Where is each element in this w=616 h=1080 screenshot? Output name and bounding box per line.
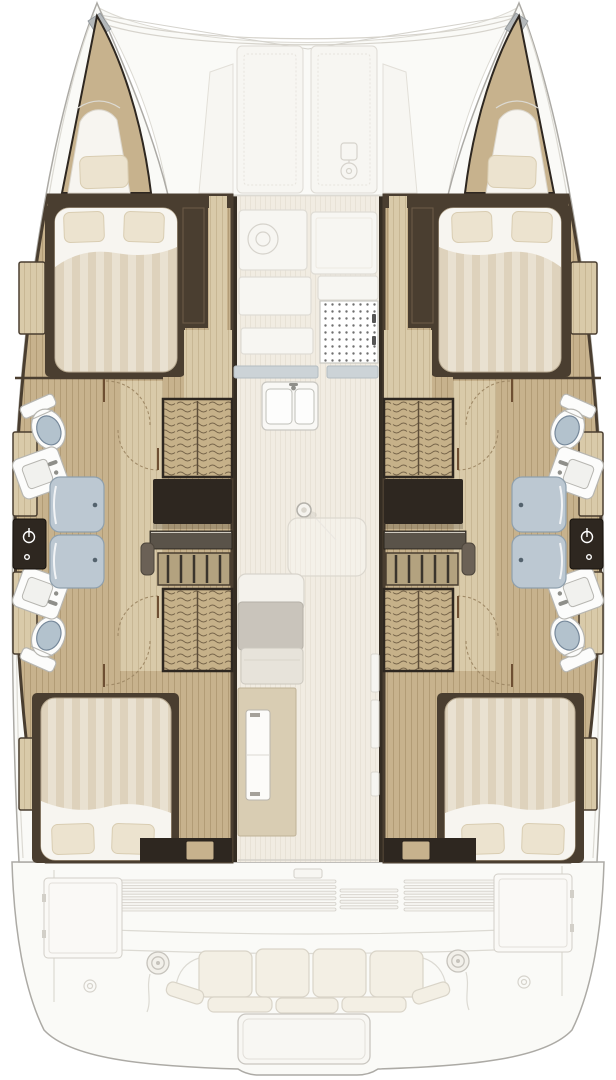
stbd-wall-locker (371, 700, 379, 748)
foredeck-panel-port (237, 46, 303, 193)
galley-sink-icon (262, 382, 318, 430)
salon-front-cabinet-stbd (311, 212, 377, 274)
stbd-stern-locker (494, 874, 574, 952)
bench-seat-cushion (276, 998, 338, 1013)
salon-table (288, 514, 366, 576)
bench-back-cushion (370, 951, 423, 997)
port-aft-cabin (32, 693, 179, 863)
bed-pillow (123, 211, 164, 242)
bed-pillow (63, 211, 104, 242)
shower-control-panel (13, 519, 46, 569)
stove-icon (320, 301, 378, 363)
stove-knob (372, 314, 376, 323)
forepeak-pillow (79, 155, 128, 189)
outboard-locker (19, 262, 45, 334)
hull-cockpit-door (186, 841, 214, 860)
hanging-locker-fore (163, 399, 232, 477)
stove-knob (372, 336, 376, 345)
bed-pillow (51, 823, 94, 854)
counter-edge-stbd (327, 366, 378, 378)
hanging-locker-aft (163, 589, 232, 671)
stbd-wall-locker (371, 772, 379, 796)
aft-double-bed (41, 698, 171, 860)
foredeck (99, 8, 517, 195)
galley-drawer (241, 328, 313, 354)
shower-door-handle (93, 503, 98, 508)
shower-door-handle (93, 558, 98, 563)
floor-plan-canvas (0, 0, 616, 1080)
galley-counter (239, 277, 311, 315)
cockpit-door-sill (294, 869, 322, 878)
port-stern-locker (42, 878, 122, 958)
stbd-wall-locker (371, 654, 379, 692)
floor-plan-page (0, 0, 616, 1080)
counter-edge-port (234, 366, 318, 378)
salon-aft-cabinet (238, 688, 296, 836)
bench-back-cushion (313, 949, 366, 997)
companionway-handrail (141, 543, 154, 575)
galley-drawer-stbd (318, 276, 378, 300)
fwd-cabin-walkway (184, 330, 232, 398)
salon-settee (238, 574, 304, 684)
bench-back-cushion (256, 949, 309, 997)
cockpit (12, 862, 604, 1075)
fridge-icon (246, 710, 270, 800)
fwd-double-bed (55, 208, 177, 372)
salon (232, 195, 384, 862)
transom-platform (238, 1014, 370, 1064)
port-forward-cabin (45, 196, 232, 398)
bench-seat-cushion (342, 997, 406, 1012)
foredeck-panel-stbd (311, 46, 377, 193)
bench-seat-cushion (208, 997, 272, 1012)
bench-back-cushion (199, 951, 252, 997)
salon-front-cabinet-port (239, 210, 307, 270)
